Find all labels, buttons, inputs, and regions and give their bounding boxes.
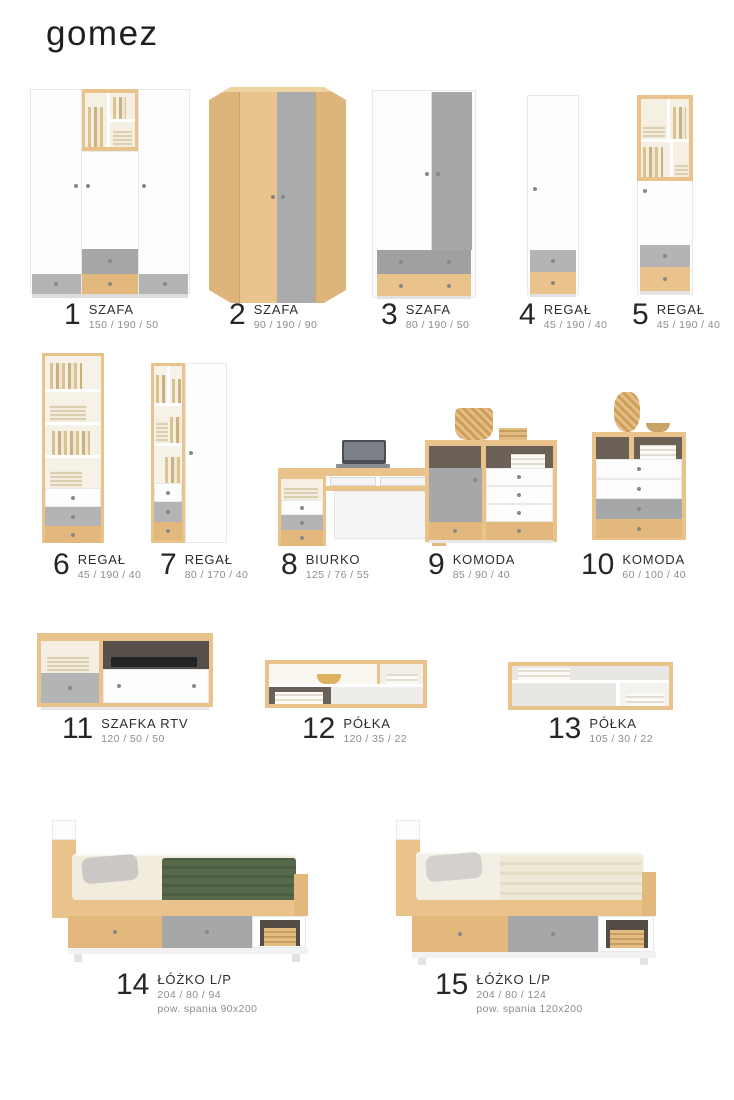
blanket: [500, 856, 642, 902]
product-name: REGAŁ: [657, 302, 721, 318]
product-7-image: [151, 363, 227, 543]
vase-decor: [614, 392, 640, 432]
product-13-label: 13 PÓŁKA 105 / 30 / 22: [548, 715, 653, 746]
bowl-decor: [646, 423, 670, 432]
product-3-label: 3 SZAFA 80 / 190 / 50: [381, 301, 469, 332]
product-number: 8: [281, 551, 298, 580]
product-number: 14: [116, 971, 149, 1000]
product-dimensions: 80 / 170 / 40: [185, 568, 249, 582]
product-name: REGAŁ: [78, 552, 142, 568]
product-5-image: [637, 95, 693, 298]
product-number: 12: [302, 715, 335, 744]
blanket: [162, 858, 296, 902]
product-6-label: 6 REGAŁ 45 / 190 / 40: [53, 551, 141, 582]
product-9-image: [425, 408, 557, 545]
product-dimensions: 85 / 90 / 40: [453, 568, 516, 582]
product-number: 1: [64, 301, 81, 330]
basket-decor: [455, 408, 493, 440]
product-dimensions: 90 / 190 / 90: [254, 318, 318, 332]
catalog-page: gomez: [0, 0, 734, 1100]
product-14-label: 14 ŁÓŻKO L/P 204 / 80 / 94 pow. spania 9…: [116, 971, 257, 1016]
product-1-image: [30, 89, 190, 301]
product-12-label: 12 PÓŁKA 120 / 35 / 22: [302, 715, 407, 746]
product-dimensions: 204 / 80 / 94: [157, 988, 257, 1002]
product-dimensions: 204 / 80 / 124: [476, 988, 582, 1002]
product-11-image: [37, 633, 213, 711]
product-sleep-area: pow. spania 90x200: [157, 1002, 257, 1016]
product-name: SZAFA: [406, 302, 470, 318]
product-2-label: 2 SZAFA 90 / 190 / 90: [229, 301, 317, 332]
media-device: [111, 657, 197, 667]
pillow: [425, 852, 483, 883]
product-name: ŁÓŻKO L/P: [157, 972, 257, 988]
product-dimensions: 120 / 35 / 22: [343, 732, 407, 746]
brand-logo: gomez: [46, 14, 159, 54]
product-name: SZAFKA RTV: [101, 716, 188, 732]
product-name: PÓŁKA: [589, 716, 653, 732]
product-name: SZAFA: [254, 302, 318, 318]
product-name: REGAŁ: [185, 552, 249, 568]
product-12-image: [265, 660, 427, 708]
product-name: BIURKO: [306, 552, 370, 568]
pillow: [81, 854, 139, 885]
product-name: SZAFA: [89, 302, 159, 318]
product-5-label: 5 REGAŁ 45 / 190 / 40: [632, 301, 720, 332]
product-number: 4: [519, 301, 536, 330]
product-dimensions: 125 / 76 / 55: [306, 568, 370, 582]
product-number: 2: [229, 301, 246, 330]
product-number: 5: [632, 301, 649, 330]
product-number: 9: [428, 551, 445, 580]
product-number: 15: [435, 971, 468, 1000]
product-number: 3: [381, 301, 398, 330]
product-2-image: [209, 87, 346, 303]
product-number: 10: [581, 551, 614, 580]
product-number: 13: [548, 715, 581, 744]
product-dimensions: 150 / 190 / 50: [89, 318, 159, 332]
product-number: 11: [62, 715, 93, 744]
product-9-label: 9 KOMODA 85 / 90 / 40: [428, 551, 515, 582]
product-name: REGAŁ: [544, 302, 608, 318]
product-15-label: 15 ŁÓŻKO L/P 204 / 80 / 124 pow. spania …: [435, 971, 583, 1016]
product-1-label: 1 SZAFA 150 / 190 / 50: [64, 301, 159, 332]
product-dimensions: 60 / 100 / 40: [622, 568, 686, 582]
product-number: 6: [53, 551, 70, 580]
product-8-label: 8 BIURKO 125 / 76 / 55: [281, 551, 369, 582]
product-8-image: [278, 440, 446, 546]
product-14-image: [44, 820, 326, 965]
product-dimensions: 45 / 190 / 40: [657, 318, 721, 332]
product-10-image: [592, 392, 686, 542]
product-10-label: 10 KOMODA 60 / 100 / 40: [581, 551, 686, 582]
product-dimensions: 45 / 190 / 40: [78, 568, 142, 582]
product-7-label: 7 REGAŁ 80 / 170 / 40: [160, 551, 248, 582]
product-name: KOMODA: [622, 552, 686, 568]
product-dimensions: 120 / 50 / 50: [101, 732, 188, 746]
product-name: KOMODA: [453, 552, 516, 568]
product-15-image: [388, 820, 673, 965]
product-dimensions: 45 / 190 / 40: [544, 318, 608, 332]
product-11-label: 11 SZAFKA RTV 120 / 50 / 50: [62, 715, 188, 746]
product-dimensions: 80 / 190 / 50: [406, 318, 470, 332]
product-6-image: [42, 353, 104, 545]
product-sleep-area: pow. spania 120x200: [476, 1002, 582, 1016]
product-3-image: [372, 90, 476, 301]
product-name: PÓŁKA: [343, 716, 407, 732]
product-name: ŁÓŻKO L/P: [476, 972, 582, 988]
product-4-label: 4 REGAŁ 45 / 190 / 40: [519, 301, 607, 332]
product-dimensions: 105 / 30 / 22: [589, 732, 653, 746]
product-number: 7: [160, 551, 177, 580]
product-4-image: [527, 95, 579, 298]
product-13-image: [508, 662, 673, 710]
